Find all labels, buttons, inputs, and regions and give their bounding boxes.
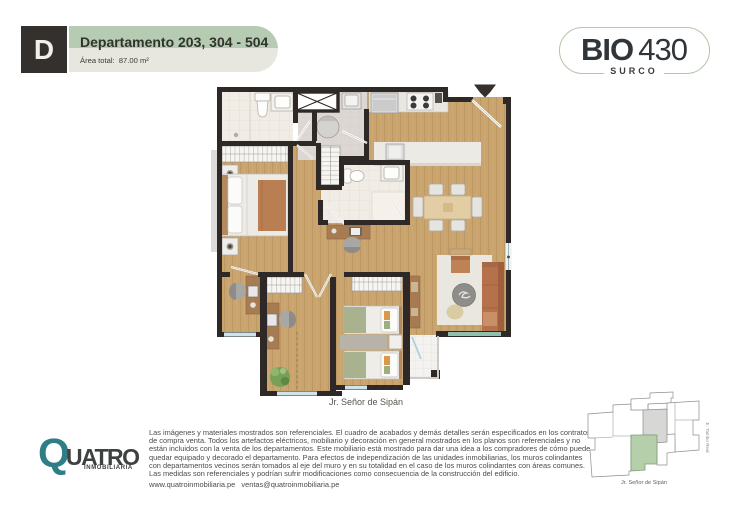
svg-text:Jr. Señor de Sipán: Jr. Señor de Sipán [621,480,667,486]
svg-text:Jr. Tambo Real: Jr. Tambo Real [705,422,710,453]
svg-text:Jr. Señor de Sipán: Jr. Señor de Sipán [329,397,403,407]
